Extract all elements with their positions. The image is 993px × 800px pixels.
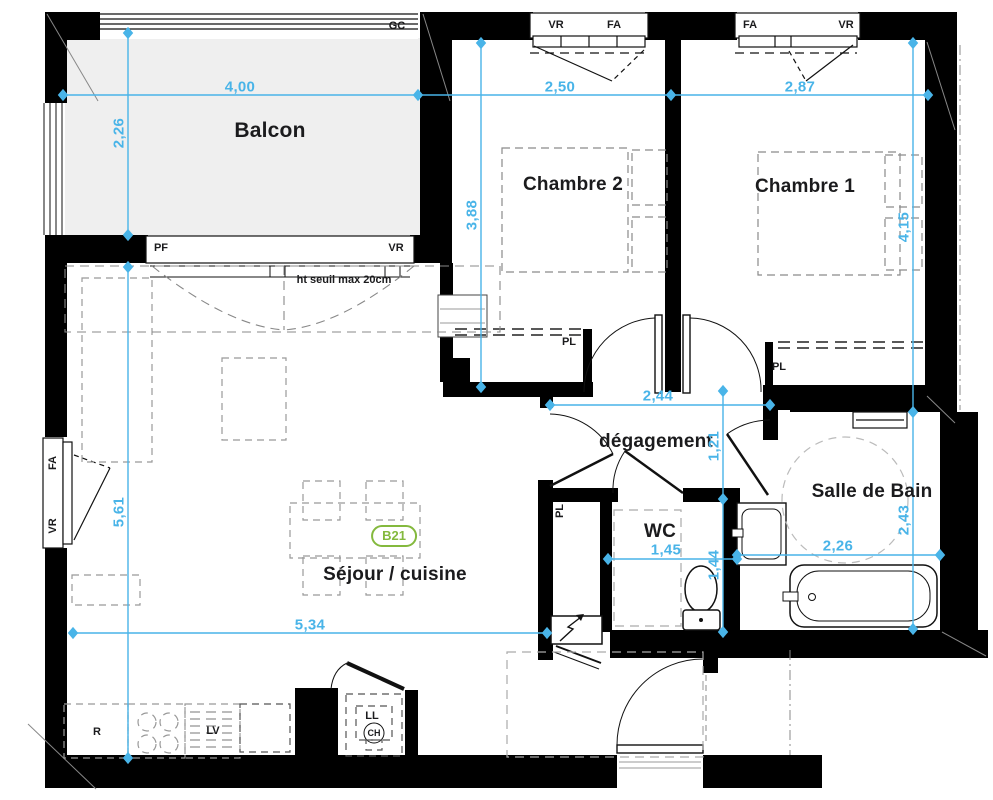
dim-sdb-width: 2,26 bbox=[823, 538, 853, 555]
annotation-pl-wc: PL bbox=[554, 504, 566, 518]
dim-sdb-depth: 2,43 bbox=[896, 505, 913, 535]
annotation-fa-chambre2: FA bbox=[607, 19, 621, 31]
annotation-water-heater: CH bbox=[368, 728, 381, 738]
annotation-vr-sejour: VR bbox=[47, 518, 59, 533]
annotation-vr-chambre2: VR bbox=[548, 19, 563, 31]
annotation-dishwasher: LV bbox=[206, 725, 219, 737]
room-label-chambre2: Chambre 2 bbox=[523, 174, 623, 196]
room-label-sejour-cuisine: Séjour / cuisine bbox=[323, 564, 467, 586]
dim-chambre1-depth: 4,15 bbox=[896, 212, 913, 242]
dim-sejour-width: 5,34 bbox=[295, 617, 325, 634]
dim-sejour-depth: 5,61 bbox=[111, 497, 128, 527]
balcony-layer bbox=[42, 12, 420, 238]
annotation-gc: GC bbox=[389, 20, 406, 32]
dim-chambre2-depth: 3,88 bbox=[464, 200, 481, 230]
annotation-fa-chambre1: FA bbox=[743, 19, 757, 31]
annotation-pf-balcon: PF bbox=[154, 242, 168, 254]
annotation-fridge: R bbox=[93, 726, 101, 738]
room-label-chambre1: Chambre 1 bbox=[755, 176, 855, 198]
floor-plan-svg bbox=[0, 0, 993, 800]
annotation-vr-balcon: VR bbox=[388, 242, 403, 254]
dim-degagement-width: 2,44 bbox=[643, 388, 673, 405]
dim-balcon-depth: 2,26 bbox=[111, 118, 128, 148]
room-label-degagement: dégagement bbox=[599, 431, 713, 453]
room-label-balcon: Balcon bbox=[234, 119, 305, 143]
floor-plan: Balcon Chambre 2 Chambre 1 dégagement WC… bbox=[0, 0, 993, 800]
dim-degagement-depth: 1,21 bbox=[706, 431, 723, 461]
annotation-pl-chambre2: PL bbox=[562, 336, 576, 348]
annotation-seuil-note: ht seuil max 20cm bbox=[297, 274, 392, 286]
dim-chambre1-width: 2,87 bbox=[785, 79, 815, 96]
annotation-washer: LL bbox=[365, 710, 378, 722]
unit-badge: B21 bbox=[371, 525, 417, 547]
dim-chambre2-width: 2,50 bbox=[545, 79, 575, 96]
dim-wc-depth: 1,44 bbox=[706, 550, 723, 580]
annotation-vr-chambre1: VR bbox=[838, 19, 853, 31]
dim-wc-width: 1,45 bbox=[651, 542, 681, 559]
annotation-fa-sejour: FA bbox=[47, 456, 59, 470]
annotation-pl-chambre1: PL bbox=[772, 361, 786, 373]
room-label-salle-de-bain: Salle de Bain bbox=[812, 481, 933, 503]
dim-balcon-width: 4,00 bbox=[225, 79, 255, 96]
room-label-wc: WC bbox=[644, 521, 676, 543]
